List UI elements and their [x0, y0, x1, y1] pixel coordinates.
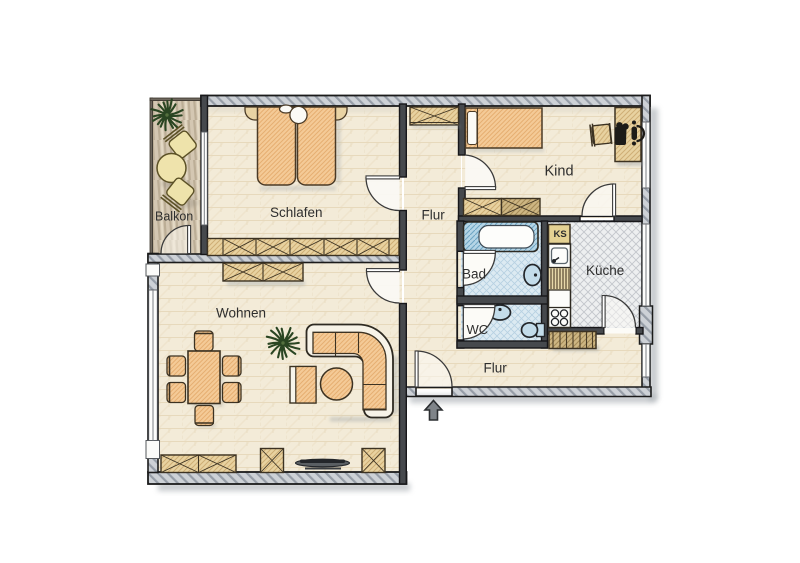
svg-text:Flur: Flur	[484, 361, 508, 376]
svg-text:Schlafen: Schlafen	[270, 205, 323, 220]
svg-text:Küche: Küche	[586, 263, 624, 278]
svg-text:Flur: Flur	[422, 208, 446, 223]
svg-text:Kind: Kind	[545, 164, 574, 180]
svg-text:WC: WC	[467, 322, 489, 337]
svg-text:Bad: Bad	[462, 267, 486, 282]
svg-text:Wohnen: Wohnen	[216, 306, 266, 321]
svg-text:Balkon: Balkon	[155, 210, 193, 224]
svg-text:KS: KS	[554, 229, 567, 240]
